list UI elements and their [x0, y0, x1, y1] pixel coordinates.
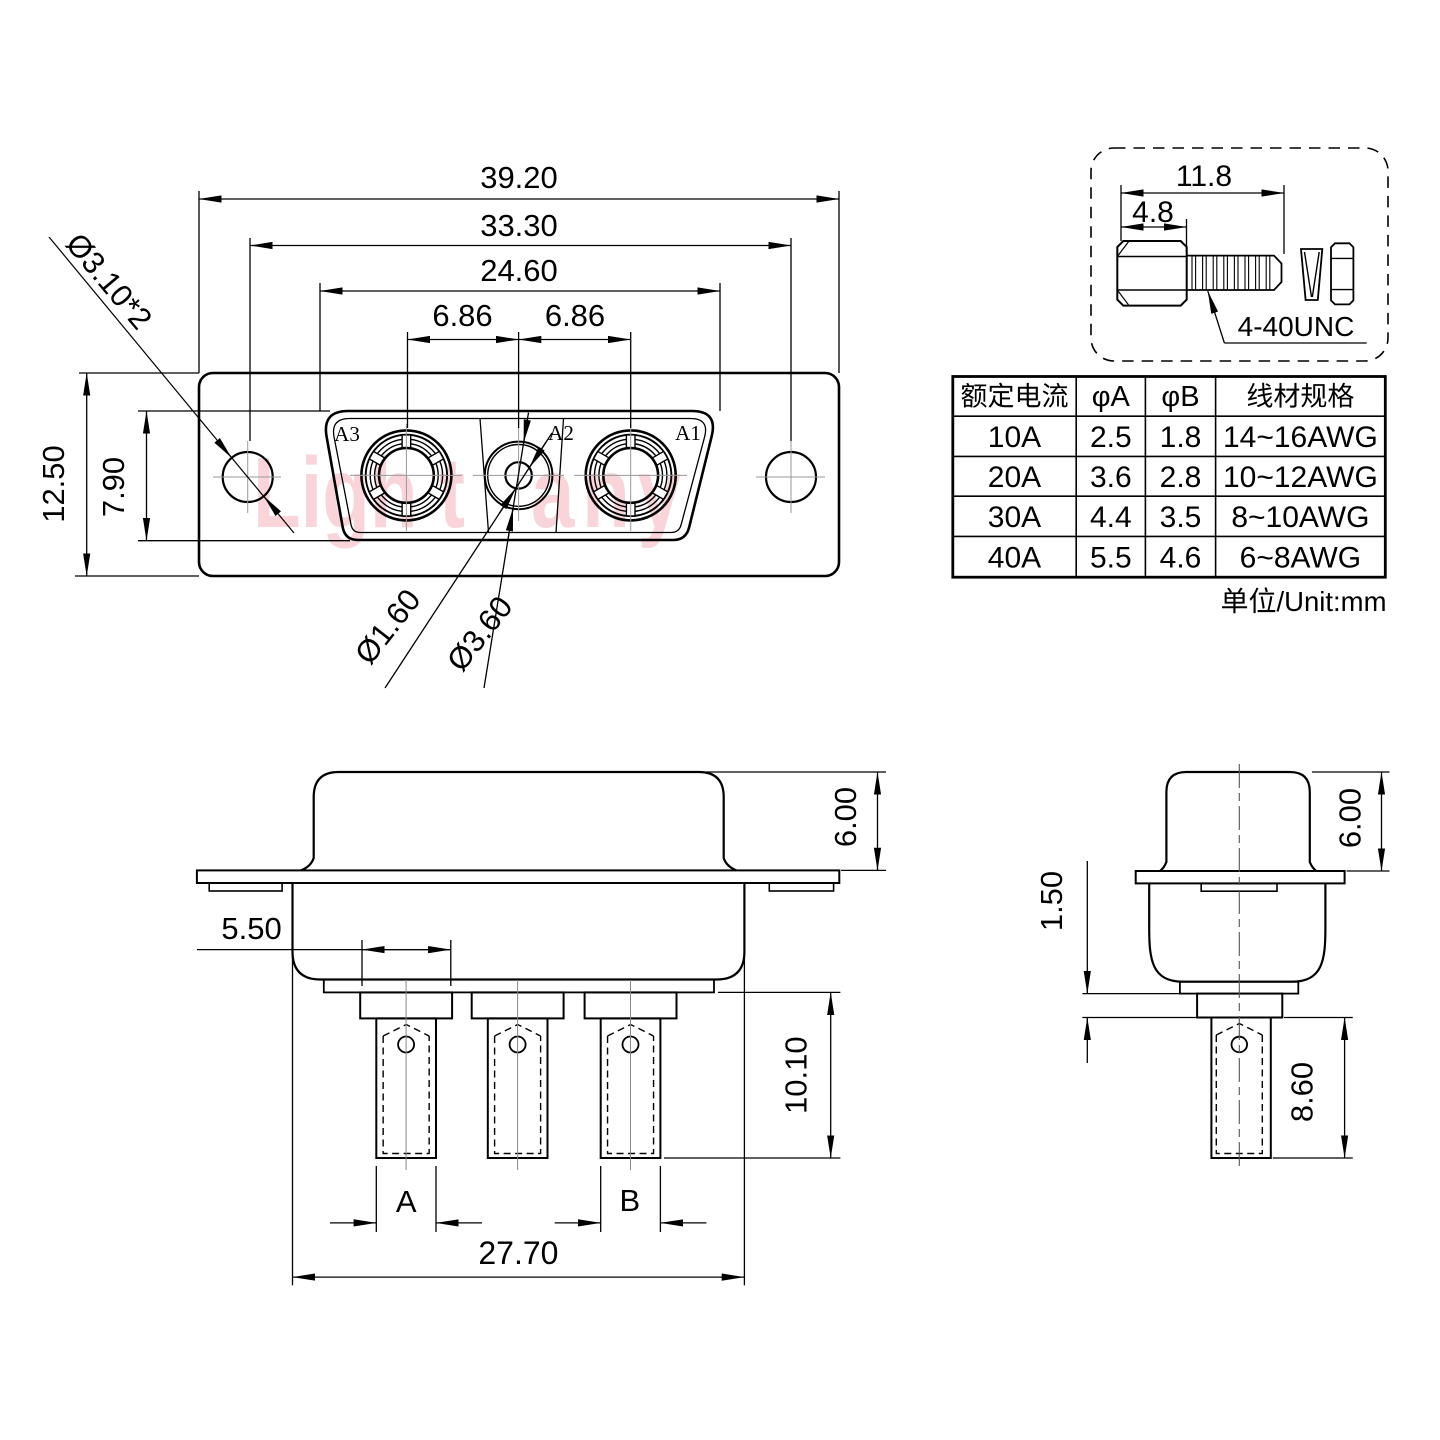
svg-text:10~12AWG: 10~12AWG — [1223, 461, 1378, 494]
svg-text:10A: 10A — [988, 421, 1041, 454]
svg-text:4-40UNC: 4-40UNC — [1238, 311, 1355, 342]
svg-text:6.86: 6.86 — [432, 298, 492, 333]
svg-text:1.8: 1.8 — [1160, 421, 1202, 454]
svg-text:6.86: 6.86 — [545, 298, 605, 333]
svg-text:39.20: 39.20 — [480, 160, 558, 195]
svg-text:2.8: 2.8 — [1160, 461, 1202, 494]
svg-text:/Unit:mm: /Unit:mm — [1277, 586, 1387, 617]
svg-text:4.8: 4.8 — [1132, 196, 1174, 229]
svg-text:5.50: 5.50 — [221, 911, 281, 946]
svg-text:Ø3.60: Ø3.60 — [440, 589, 520, 677]
svg-text:40A: 40A — [988, 542, 1041, 575]
svg-text:12.50: 12.50 — [36, 445, 71, 523]
svg-text:φB: φB — [1161, 381, 1199, 413]
svg-text:B: B — [619, 1183, 640, 1218]
svg-text:2.5: 2.5 — [1090, 421, 1132, 454]
svg-text:10.10: 10.10 — [779, 1036, 814, 1114]
svg-text:8~10AWG: 8~10AWG — [1231, 501, 1369, 534]
svg-text:A: A — [396, 1184, 417, 1219]
svg-text:4.4: 4.4 — [1090, 501, 1132, 534]
svg-text:1.50: 1.50 — [1034, 871, 1069, 931]
svg-text:A1: A1 — [675, 421, 701, 445]
svg-text:6.00: 6.00 — [828, 787, 863, 847]
svg-text:A3: A3 — [334, 422, 360, 446]
svg-text:6.00: 6.00 — [1333, 788, 1368, 848]
svg-text:14~16AWG: 14~16AWG — [1223, 421, 1378, 454]
svg-text:A2: A2 — [548, 421, 574, 445]
svg-text:φA: φA — [1092, 381, 1131, 413]
svg-text:4.6: 4.6 — [1160, 542, 1202, 575]
svg-text:24.60: 24.60 — [480, 253, 558, 288]
svg-text:27.70: 27.70 — [478, 1235, 558, 1271]
svg-text:30A: 30A — [988, 501, 1041, 534]
svg-text:7.90: 7.90 — [96, 457, 131, 517]
svg-text:Ø1.60: Ø1.60 — [348, 582, 428, 670]
svg-text:5.5: 5.5 — [1090, 542, 1132, 575]
svg-text:20A: 20A — [988, 461, 1041, 494]
svg-text:33.30: 33.30 — [480, 208, 558, 243]
svg-text:6~8AWG: 6~8AWG — [1240, 542, 1361, 575]
svg-text:8.60: 8.60 — [1285, 1062, 1320, 1122]
svg-text:11.8: 11.8 — [1176, 160, 1232, 193]
svg-text:3.5: 3.5 — [1160, 501, 1202, 534]
svg-text:3.6: 3.6 — [1090, 461, 1132, 494]
svg-text:Ø3.10*2: Ø3.10*2 — [59, 226, 159, 336]
